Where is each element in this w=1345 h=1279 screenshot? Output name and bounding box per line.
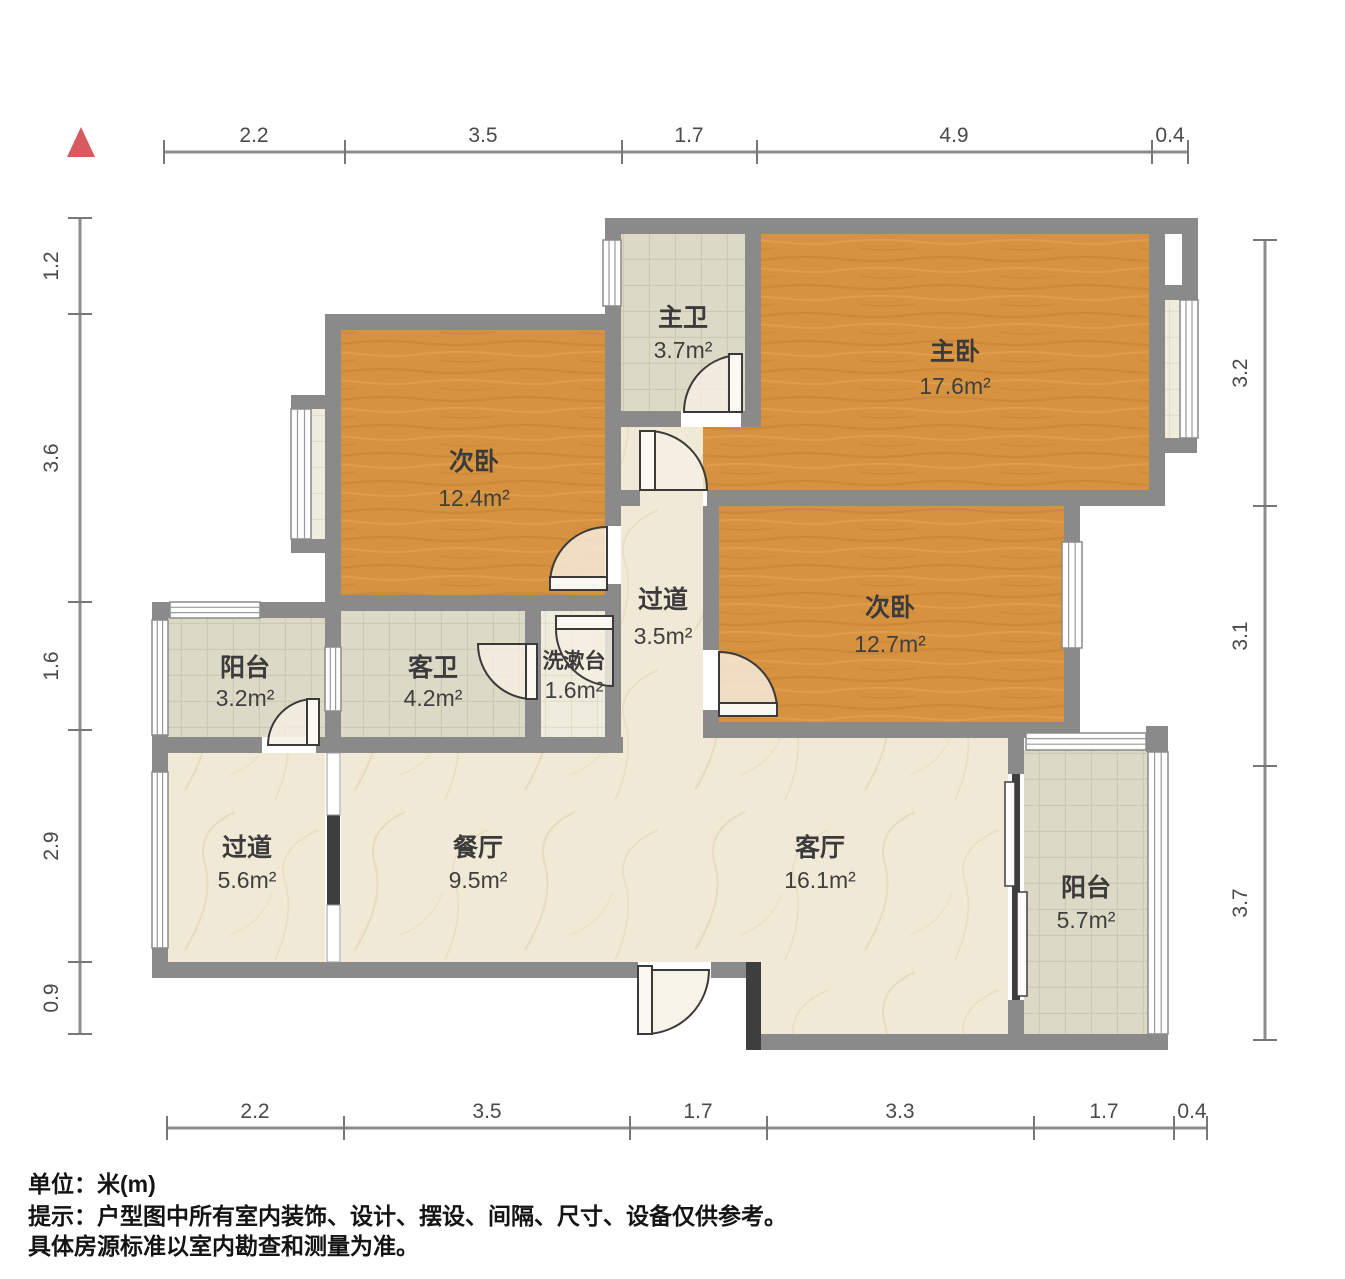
master-bedroom-bay-window [1180,300,1198,438]
entry-door-leaf [638,966,652,1034]
balcony-guestbath-window [325,647,341,711]
dim-top-4: 4.9 [939,124,968,147]
bedroom-left-bay-sill [311,409,325,539]
room-area-master-bedroom: 17.6m² [919,373,991,399]
balcony-left-top-window [170,602,260,618]
dining-living-floor [341,753,1008,962]
dim-left-2: 3.6 [40,443,63,472]
living-room-floor-lower [761,962,1008,1034]
master-bath-left-window [603,240,621,306]
dim-right-3: 3.7 [1229,888,1252,917]
bedroom-right-door-leaf [719,703,777,716]
entry-door-arc [645,970,709,1034]
room-label-living-room: 客厅 [795,833,845,862]
master-bedroom-bay-sill [1164,300,1180,438]
unit-note: 单位：米(m) [28,1171,156,1197]
balcony-right-side-window [1148,752,1168,1034]
dim-bottom-4: 3.3 [885,1100,914,1123]
disclaimer-line1: 提示：户型图中所有室内装饰、设计、摆设、间隔、尺寸、设备仅供参考。 [28,1203,787,1229]
sliding-door-panel [1005,782,1015,886]
ruler-bottom: 2.2 3.5 1.7 3.3 1.7 0.4 [167,1100,1207,1140]
dim-bottom-2: 3.5 [472,1100,501,1123]
room-label-bedroom-right: 次卧 [865,594,915,622]
room-label-balcony-left: 阳台 [220,653,270,682]
floor-plan: 主卫 3.7m² 主卧 17.6m² 次卧 12.4m² 过道 3.5m² 次卧… [0,0,1345,1279]
sliding-door-panel [1017,892,1027,996]
bedroom-left-bay-window [291,409,311,539]
balcony-right-top-window [1026,733,1146,750]
floor-plan-page: 主卫 3.7m² 主卧 17.6m² 次卧 12.4m² 过道 3.5m² 次卧… [0,0,1345,1279]
balcony-left-door-leaf [307,699,319,745]
room-label-hallway-bottom: 过道 [222,833,272,862]
disclaimer-line2: 具体房源标准以室内勘查和测量为准。 [28,1233,419,1259]
master-bath-door-leaf [729,354,742,412]
washstand-door-leaf [556,616,613,629]
room-area-dining-room: 9.5m² [449,867,508,893]
room-label-washstand: 洗漱台 [543,649,606,673]
dim-top-5: 0.4 [1155,124,1185,147]
guest-bath-door-leaf [526,644,537,699]
room-area-balcony-right: 5.7m² [1057,907,1116,933]
room-area-washstand: 1.6m² [545,677,604,703]
dim-bottom-3: 1.7 [683,1100,712,1123]
dim-bottom-5: 1.7 [1089,1100,1118,1123]
room-label-bedroom-left: 次卧 [449,448,499,476]
dim-left-1: 1.2 [40,251,63,280]
ruler-left: 1.2 3.6 1.6 2.9 0.9 [40,218,92,1034]
footnotes: 单位：米(m) 提示：户型图中所有室内装饰、设计、摆设、间隔、尺寸、设备仅供参考… [28,1171,787,1259]
room-label-balcony-right: 阳台 [1061,873,1111,902]
room-label-master-bedroom: 主卧 [930,338,980,366]
master-bedroom-floor [703,234,1149,490]
room-area-master-bath: 3.7m² [654,337,713,363]
north-arrow-icon [67,127,95,157]
ruler-right: 3.2 3.1 3.7 [1229,240,1277,1040]
room-area-balcony-left: 3.2m² [216,685,275,711]
dim-top-1: 2.2 [239,124,268,147]
dim-top-3: 1.7 [674,124,703,147]
bedroom-left-door-leaf [550,577,607,590]
room-area-bedroom-left: 12.4m² [438,485,510,511]
dim-bottom-6: 0.4 [1177,1100,1207,1123]
dim-bottom-1: 2.2 [240,1100,269,1123]
room-area-living-room: 16.1m² [784,867,856,893]
room-label-master-bath: 主卫 [658,304,708,332]
room-label-dining-room: 餐厅 [453,834,503,862]
dim-right-1: 3.2 [1229,358,1252,387]
bedroom-right-side-window [1062,542,1082,648]
room-label-hallway-center: 过道 [638,585,688,614]
living-step-wall [746,962,761,1050]
dining-hall-partition [327,815,340,905]
dim-left-3: 1.6 [40,651,63,680]
room-label-guest-bath: 客卫 [408,653,458,682]
dim-right-2: 3.1 [1229,621,1252,650]
balcony-left-side-window [152,620,168,735]
master-bedroom-door-leaf [640,431,655,490]
ruler-top: 2.2 3.5 1.7 4.9 0.4 [164,124,1188,164]
dim-left-5: 0.9 [40,983,63,1012]
room-area-guest-bath: 4.2m² [404,685,463,711]
dim-top-2: 3.5 [468,124,497,147]
room-area-bedroom-right: 12.7m² [854,631,926,657]
dim-left-4: 2.9 [40,831,63,860]
room-area-hallway-bottom: 5.6m² [218,867,277,893]
room-area-hallway-center: 3.5m² [634,623,693,649]
living-room-floor-strip [703,738,1008,753]
hallway-bottom-side-window [152,772,168,948]
